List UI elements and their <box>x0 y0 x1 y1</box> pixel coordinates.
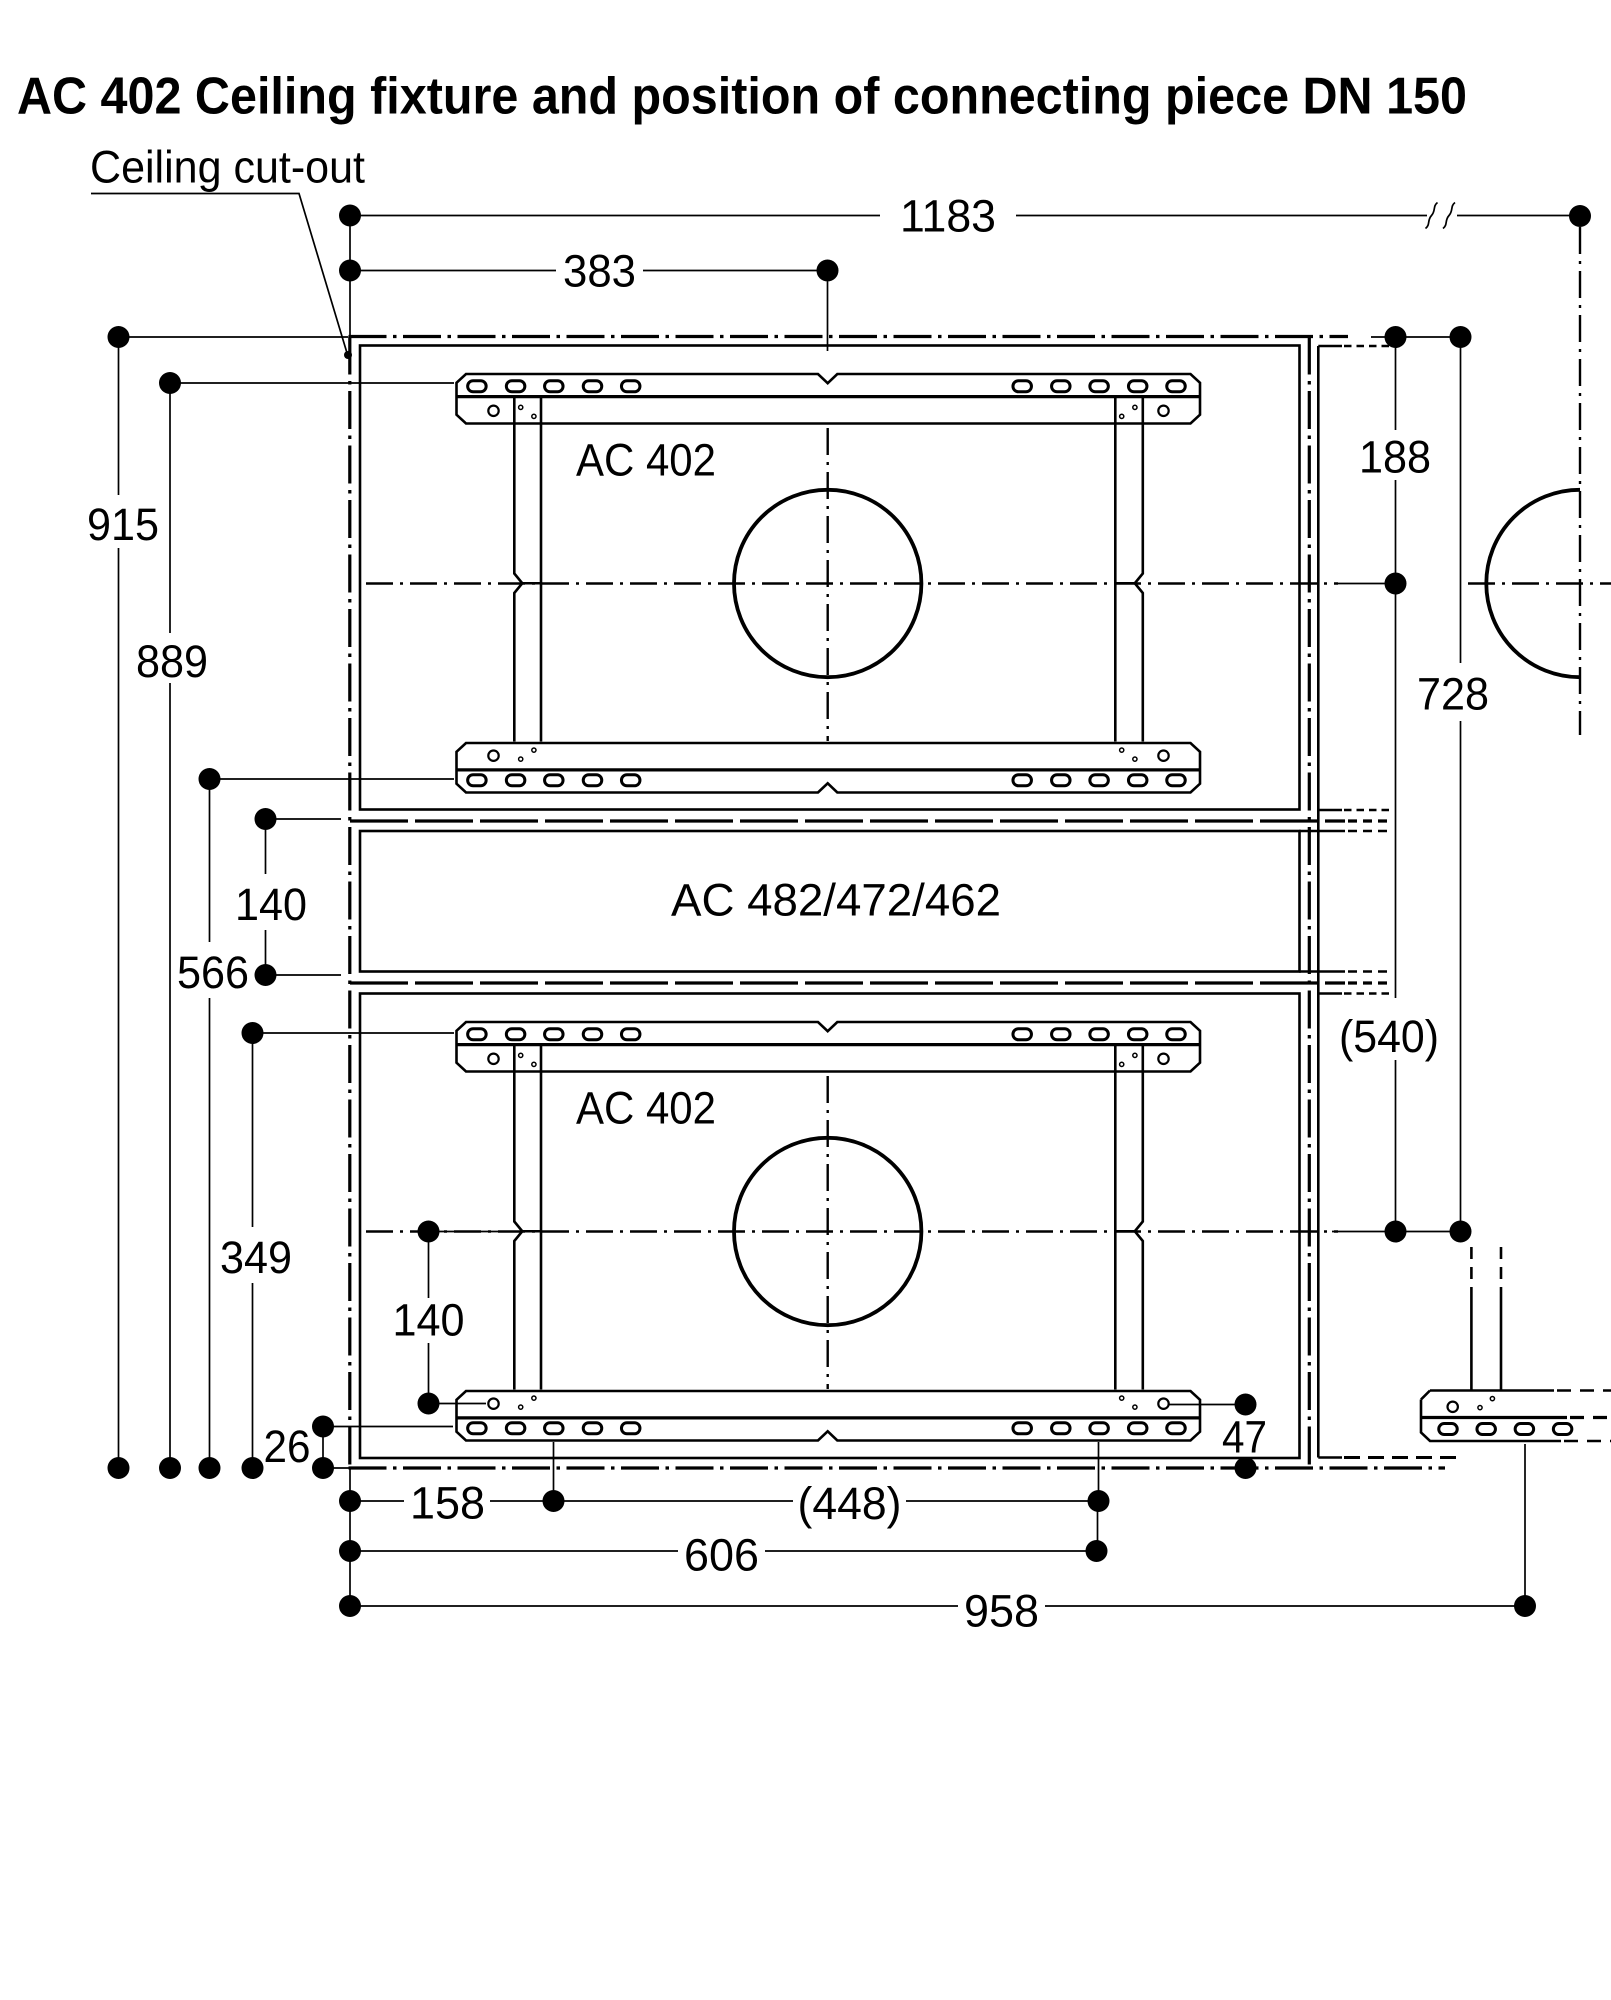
svg-text:158: 158 <box>410 1478 485 1529</box>
svg-text:AC 402 Ceiling fixture and pos: AC 402 Ceiling fixture and position of c… <box>17 68 1467 126</box>
svg-text:889: 889 <box>136 636 208 687</box>
svg-text:383: 383 <box>563 246 636 297</box>
svg-text:47: 47 <box>1222 1412 1267 1463</box>
svg-text:606: 606 <box>684 1530 759 1581</box>
svg-text:AC 402: AC 402 <box>576 435 716 486</box>
svg-text:566: 566 <box>177 947 249 998</box>
svg-text:140: 140 <box>393 1295 465 1346</box>
svg-text:140: 140 <box>235 879 307 930</box>
svg-text:1183: 1183 <box>900 191 996 242</box>
svg-text:(540): (540) <box>1339 1011 1439 1062</box>
svg-text:915: 915 <box>87 499 159 550</box>
svg-text:958: 958 <box>964 1586 1039 1637</box>
svg-text:(448): (448) <box>798 1478 902 1529</box>
svg-text:728: 728 <box>1417 669 1489 720</box>
svg-text:26: 26 <box>264 1421 311 1472</box>
svg-text:349: 349 <box>220 1232 292 1283</box>
svg-text:Ceiling cut-out: Ceiling cut-out <box>90 142 365 193</box>
svg-text:AC 482/472/462: AC 482/472/462 <box>671 875 1001 926</box>
svg-text:188: 188 <box>1359 432 1431 483</box>
